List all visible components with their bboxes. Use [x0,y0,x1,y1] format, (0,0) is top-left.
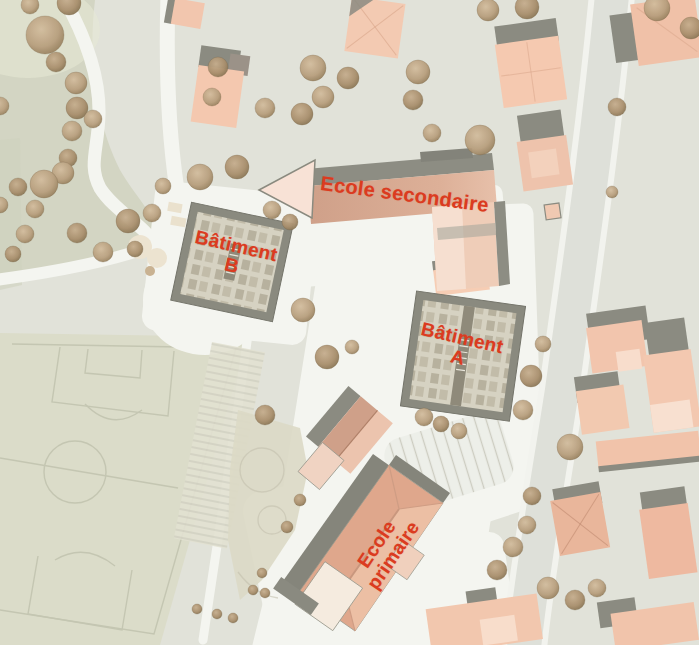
site-plan-map: Ecole secondaire Bâtiment B Bâtiment A E… [0,0,699,645]
building-batiment-b [171,202,294,321]
map-artwork [0,0,699,645]
building-batiment-a [400,291,525,421]
